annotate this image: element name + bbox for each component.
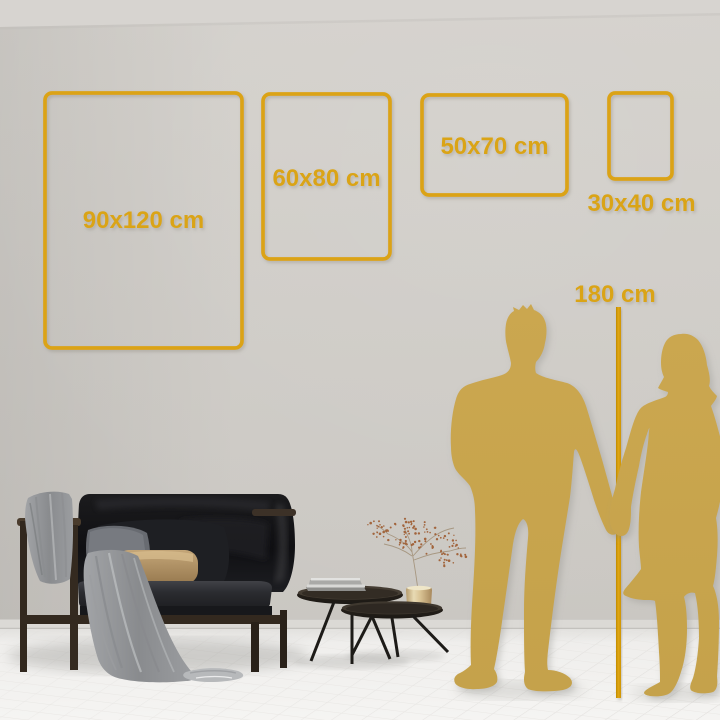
svg-text:90x120 cm: 90x120 cm: [83, 207, 204, 234]
svg-text:180 cm: 180 cm: [574, 281, 655, 308]
svg-text:60x80 cm: 60x80 cm: [272, 165, 380, 192]
svg-text:50x70 cm: 50x70 cm: [440, 133, 548, 160]
svg-text:30x40 cm: 30x40 cm: [587, 190, 695, 217]
